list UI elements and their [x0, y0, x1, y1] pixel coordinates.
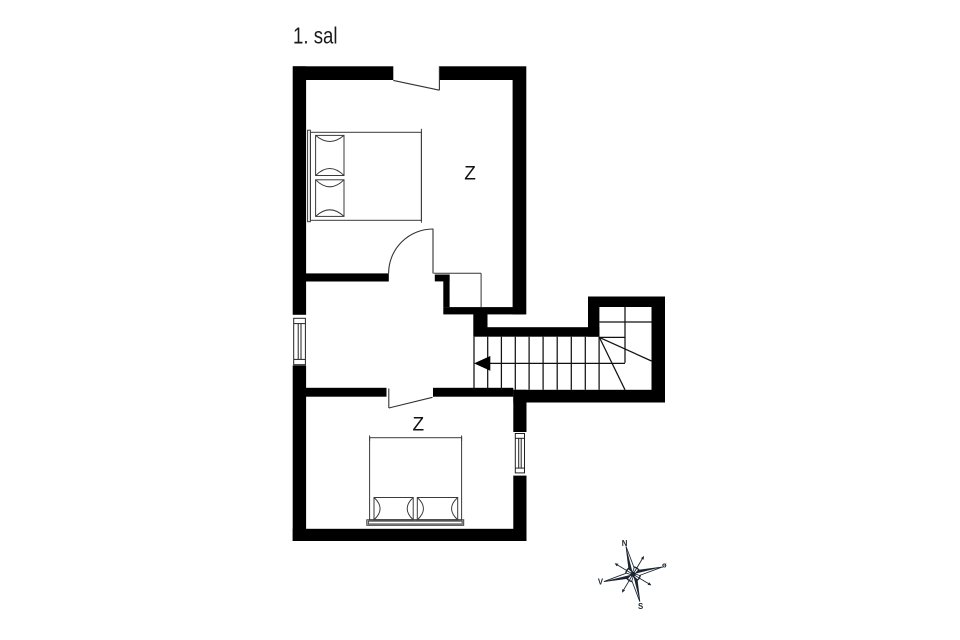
svg-text:1. sal: 1. sal	[293, 22, 338, 48]
svg-text:Z: Z	[412, 415, 424, 436]
svg-text:N: N	[622, 539, 628, 548]
svg-text:S: S	[638, 602, 643, 611]
svg-text:ø: ø	[662, 560, 667, 569]
svg-text:V: V	[598, 578, 604, 587]
svg-text:Z: Z	[464, 164, 476, 185]
